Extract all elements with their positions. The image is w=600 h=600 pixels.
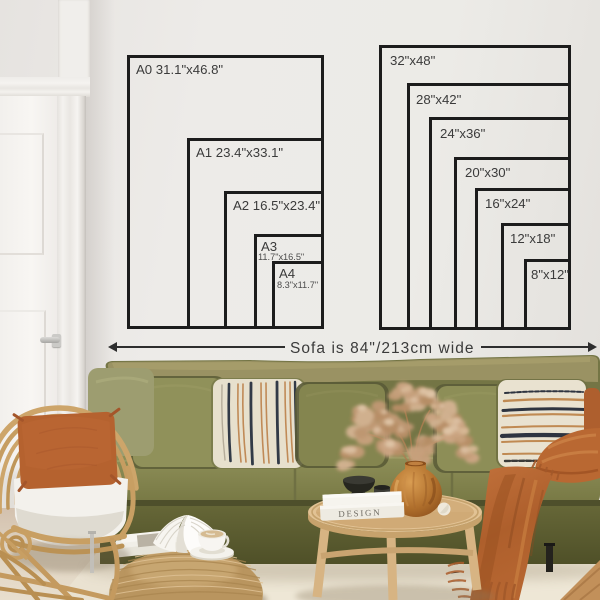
svg-text:DESIGN: DESIGN xyxy=(338,507,381,519)
